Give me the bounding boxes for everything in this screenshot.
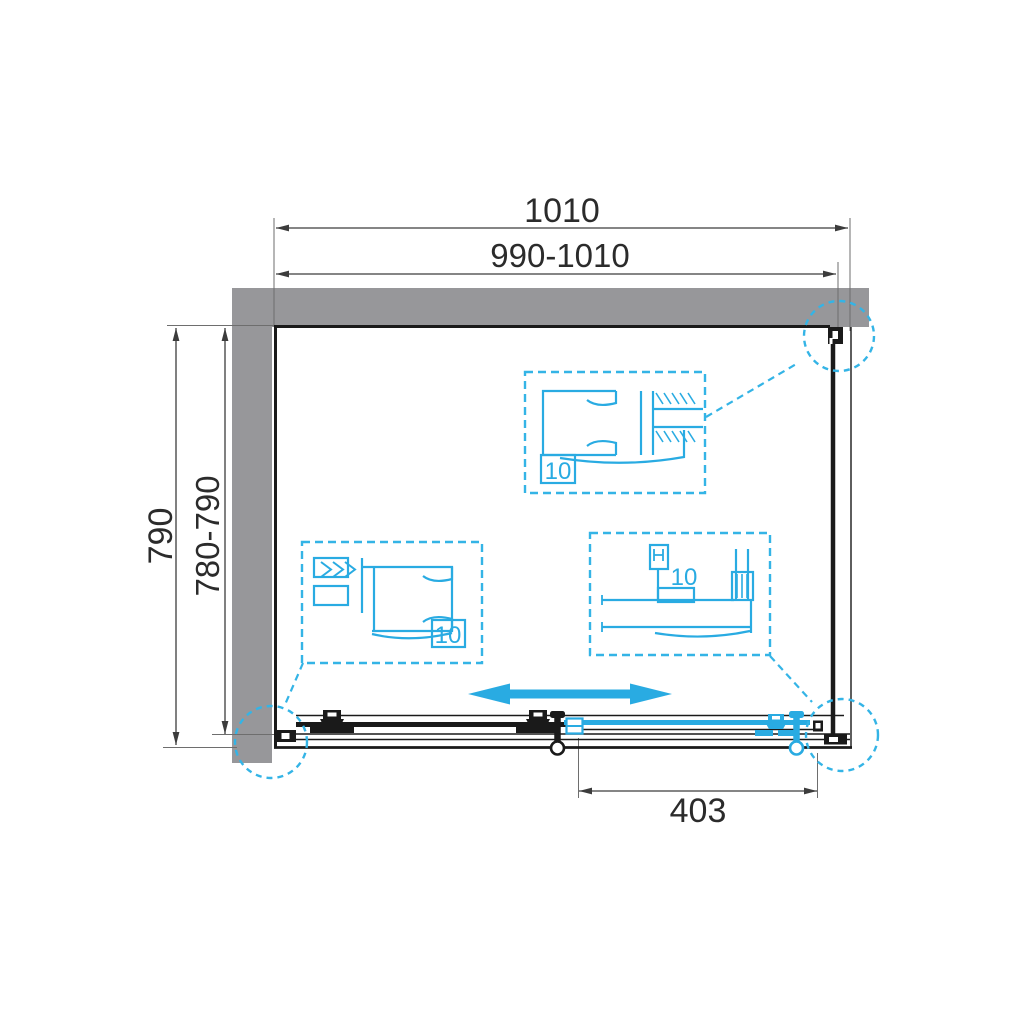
shower-enclosure-plan-drawing: 10 10 [0,0,1024,1024]
technical-drawing-canvas: 10 10 [0,0,1024,1024]
dim-top-overall: 1010 [524,192,600,230]
dim-top-adjustable: 990-1010 [490,237,629,274]
detail-callout-top: 10 [525,372,705,493]
left-corner-bracket-icon [277,730,296,742]
wall-top [232,288,869,327]
glass-thickness-label: 10 [671,564,698,591]
dim-side-overall: 790 [142,508,180,565]
dim-side-adjustable: 780-790 [189,475,226,596]
slide-direction-arrow-icon [468,684,672,705]
glass-clamp-highlight-icon [567,719,583,734]
glass-thickness-label: 10 [435,622,462,649]
leader-right [770,656,812,702]
enclosure-outline [274,325,852,748]
detail-callout-right: 10 [590,533,770,655]
right-corner-bracket-icon [813,721,847,745]
dim-door-panel: 403 [670,792,727,830]
roller-carriage-icon [310,710,354,733]
glass-thickness-label: 10 [545,458,572,485]
detail-callout-left: 10 [302,542,482,663]
wall-left [232,288,272,763]
leader-left [284,663,303,707]
leader-top [706,363,798,417]
wall-profile-icon [828,327,843,344]
